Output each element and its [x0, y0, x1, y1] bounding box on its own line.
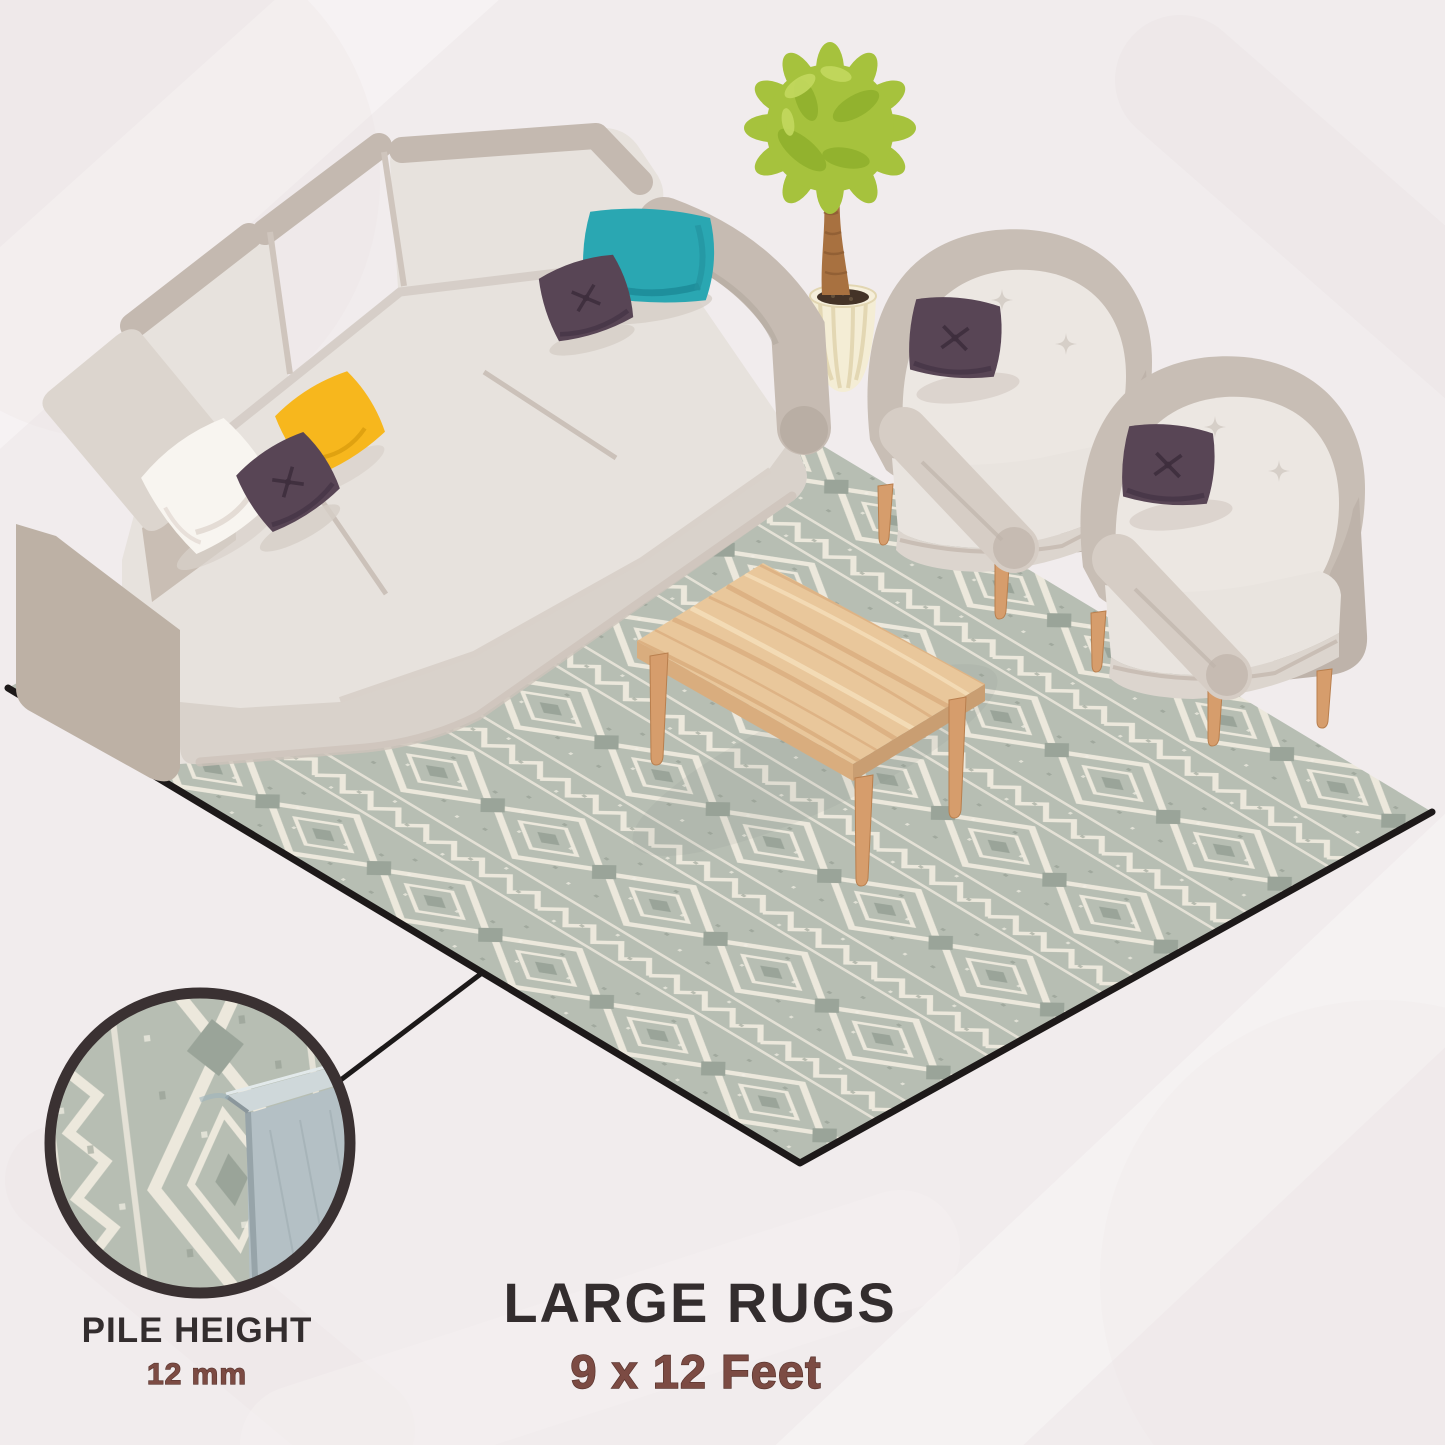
rug-product-infographic: PILE HEIGHT 12 mm LARGE RUGS 9 x 12 Feet	[0, 0, 1445, 1445]
scene: PILE HEIGHT 12 mm LARGE RUGS 9 x 12 Feet	[0, 0, 1445, 1445]
product-size: 9 x 12 Feet	[570, 1345, 821, 1398]
product-title: LARGE RUGS	[503, 1271, 896, 1334]
pile-height-value: 12 mm	[147, 1358, 247, 1391]
pile-height-label: PILE HEIGHT	[82, 1311, 313, 1350]
